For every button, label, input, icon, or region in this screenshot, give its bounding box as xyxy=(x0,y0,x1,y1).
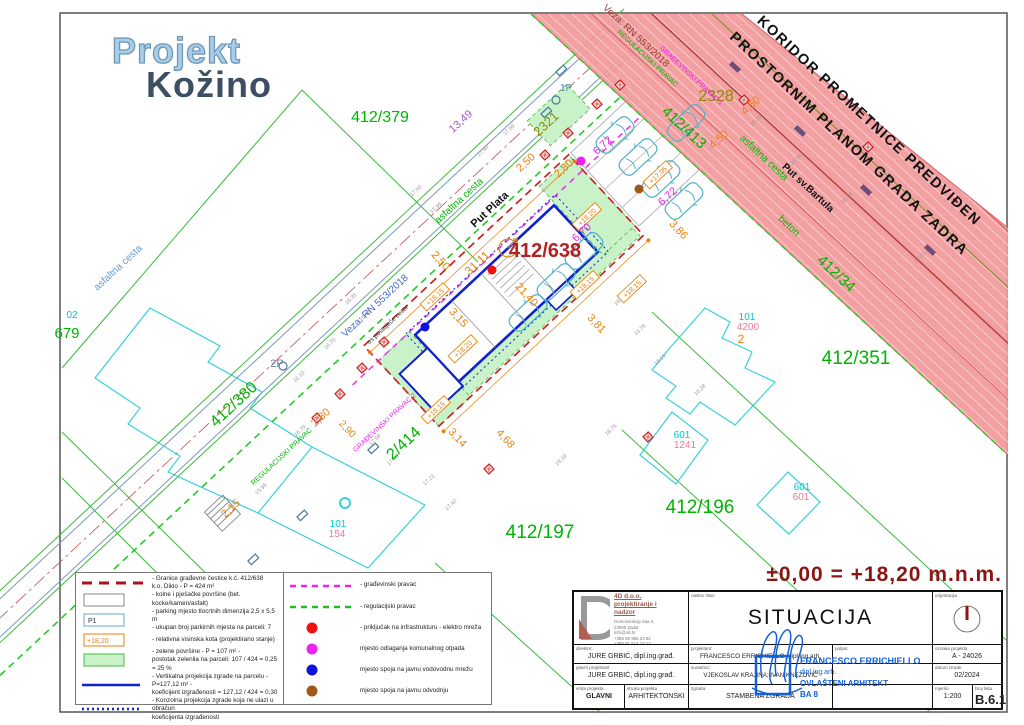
plan-label: 679 xyxy=(54,325,79,342)
legend-text: mjesto odlaganja komunalnog otpada xyxy=(360,645,465,653)
broj-lista-cell: broj lista B.6.1 xyxy=(972,684,1001,710)
vrsta-value: GLAVNI xyxy=(576,693,622,700)
legend-row: - Granice građevne čestice k.č. 412/638 … xyxy=(76,575,283,591)
boundary-marker xyxy=(592,99,602,109)
legend-symbol-dot-#1111DD xyxy=(288,662,354,678)
plan-label: 02 xyxy=(66,310,78,321)
broj-lista-value: B.6.1 xyxy=(975,692,999,707)
direktor-value: JURE GRBIĆ, dipl.ing.građ. xyxy=(576,653,686,660)
plan-label: 412/197 xyxy=(506,522,575,543)
orientation-cell: orijentacija xyxy=(932,592,1001,644)
boundary-marker xyxy=(357,363,367,373)
plan-label: 1241 xyxy=(674,440,697,451)
title-block: 4D d.o.o. projektiranje i nadzor Domovin… xyxy=(572,590,1003,710)
spot-height: 17,50 xyxy=(409,184,423,198)
plan-label: Put Plata xyxy=(469,189,512,230)
glavni-label: glavni projektant xyxy=(576,665,686,670)
direktor-label: direktor: xyxy=(576,646,686,651)
broj-lista-label: broj lista xyxy=(975,686,999,691)
plan-label: 2 xyxy=(738,332,745,346)
plan-label: 1P xyxy=(560,83,573,94)
legend-symbol-p1: P1 xyxy=(80,612,146,628)
project-logo: Projekt Kožino xyxy=(112,34,272,102)
legend-symbol-magentadash xyxy=(288,578,354,594)
elevation-box-label: +18,15 xyxy=(617,275,646,303)
glavni-value: JURE GRBIĆ, dipl.ing.građ. xyxy=(576,672,686,679)
zgrada-value: STAMBENA ZGRADA xyxy=(691,693,830,700)
legend-symbol-dot-#EE22EE xyxy=(288,641,354,657)
spot-height: 18,75 xyxy=(604,423,618,437)
legend-text: mjesto spoja na javnu vodovodnu mrežu xyxy=(360,666,473,674)
legend-right-column: - građevinski pravac- regulacijski prava… xyxy=(284,573,491,704)
spot-height: 17,59 xyxy=(502,123,516,137)
legend-text: - relativna visinska kota (projektirano … xyxy=(152,636,275,644)
drawing-sheet: 17,5017,9918,3516,4816,7016,1017,2117,40… xyxy=(0,0,1024,725)
boundary-marker xyxy=(335,389,345,399)
plan-label: 3,81 xyxy=(585,312,608,336)
legend-text: - parking mjesto tlocrtnih dimenzija 2,5… xyxy=(152,608,279,633)
oznaka-value: A - 24026 xyxy=(935,653,999,660)
legend-text: - Konzolna projekcija zgrade koja ne ula… xyxy=(152,697,279,722)
legend-left-column: - Granice građevne čestice k.č. 412/638 … xyxy=(76,573,284,704)
sheet-title-label: naslov lista: xyxy=(691,593,930,598)
plan-label: 3,86 xyxy=(667,218,690,242)
plan-label: 13,49 xyxy=(447,108,475,136)
suradnici-value: VJEKOSLAV KRAJINA; IVAN KNEZOVIĆ xyxy=(691,672,830,679)
waste-point-dot xyxy=(577,157,586,166)
direktor-cell: direktor: JURE GRBIĆ, dipl.ing.građ. xyxy=(574,644,688,663)
svg-text:+18,20: +18,20 xyxy=(87,638,109,645)
spot-height: 16,28 xyxy=(693,383,707,397)
potpis-label: potpis: xyxy=(835,646,930,651)
orientation-label: orijentacija xyxy=(935,593,999,598)
potpis-cell: potpis: xyxy=(832,644,932,663)
plan-label: 601 xyxy=(793,492,810,503)
legend-symbol-greendash xyxy=(288,599,354,615)
glavni-cell: glavni projektant JURE GRBIĆ, dipl.ing.g… xyxy=(574,663,688,684)
plan-label: 412/379 xyxy=(351,109,409,126)
legend-row: +18,20- relativna visinska kota (projekt… xyxy=(76,632,283,648)
legend-row: mjesto spoja na javnu odvodnju xyxy=(284,683,491,699)
company-logo-icon xyxy=(576,595,610,641)
projektant-value: FRANCESCO ERRICHIELLO, dipl.ing.arh. xyxy=(691,653,830,660)
projektant-cell: projektant: FRANCESCO ERRICHIELLO, dipl.… xyxy=(688,644,832,663)
spot-height: 16,78 xyxy=(633,323,647,337)
datum-label: datum izrade xyxy=(935,665,999,670)
spot-height: 17,40 xyxy=(444,498,458,512)
suradnici-cell: suradnici: VJEKOSLAV KRAJINA; IVAN KNEZO… xyxy=(688,663,832,684)
plan-label: 2/414 xyxy=(383,424,424,464)
spot-height: 18,35 xyxy=(344,292,358,306)
struka-label: struka projekta xyxy=(627,686,686,691)
plan-label: 3,14 xyxy=(446,426,469,450)
stamp-cell xyxy=(832,663,932,684)
plan-label: 2,50 xyxy=(429,249,452,273)
legend-symbol-bluedots xyxy=(80,701,146,717)
mjerilo-label: mjerilo xyxy=(935,686,970,691)
legend-row: P1- parking mjesto tlocrtnih dimenzija 2… xyxy=(76,608,283,633)
sheet-title-cell: naslov lista: SITUACIJA xyxy=(688,592,932,644)
legend-text: - zelene površine - P = 107 m² - postota… xyxy=(152,648,279,673)
plan-label: 412/196 xyxy=(666,497,735,518)
legend-symbol-dot-#EE1111 xyxy=(288,620,354,636)
spot-height: 17,90 xyxy=(476,144,490,158)
legend-symbol-green xyxy=(80,652,146,668)
vrsta-cell: vrsta projekta GLAVNI xyxy=(574,684,624,710)
plan-label: asfaltna cesta xyxy=(92,243,145,293)
legend-text: - regulacijski pravac xyxy=(360,603,416,611)
struka-value: ARHITEKTONSKI xyxy=(627,693,686,700)
plan-label: 2,80 xyxy=(309,406,333,429)
svg-text:P1: P1 xyxy=(88,618,97,625)
legend-row: - Vertikalna projekcija zgrade na parcel… xyxy=(76,673,283,698)
legend-row: - građevinski pravac xyxy=(284,578,491,594)
mjerilo-cell: mjerilo 1:200 xyxy=(932,684,972,710)
spot-height: 17,21 xyxy=(422,473,436,487)
legend-symbol-surface xyxy=(80,592,146,608)
company-address: Domovinskog rata 3, 23000 Zadar info@4d.… xyxy=(614,619,686,647)
company-name: 4D d.o.o. projektiranje i nadzor xyxy=(614,593,686,617)
plan-label: 4,68 xyxy=(494,427,517,451)
legend-row: - kolne i pješačke površine (bet. kocke/… xyxy=(76,591,283,607)
spot-height: 16,10 xyxy=(292,370,306,384)
legend-text: mjesto spoja na javnu odvodnju xyxy=(360,687,448,695)
legend-row: - priključak na infrastrukturu - elektro… xyxy=(284,620,491,636)
legend-row: mjesto odlaganja komunalnog otpada xyxy=(284,641,491,657)
legend-row: - regulacijski pravac xyxy=(284,599,491,615)
struka-cell: struka projekta ARHITEKTONSKI xyxy=(624,684,688,710)
legend-row: mjesto spoja na javnu vodovodnu mrežu xyxy=(284,662,491,678)
vrsta-label: vrsta projekta xyxy=(576,686,622,691)
boundary-marker xyxy=(484,464,494,474)
suradnici-label: suradnici: xyxy=(691,665,830,670)
legend-text: - kolne i pješačke površine (bet. kocke/… xyxy=(152,591,279,607)
stamp-cell2 xyxy=(832,684,932,710)
spot-height: 18,19 xyxy=(653,353,667,367)
boundary-marker xyxy=(379,337,389,347)
legend-symbol-dot-#A05818 xyxy=(288,683,354,699)
plan-label: 154 xyxy=(329,529,346,540)
datum-cell: datum izrade 02/2024 xyxy=(932,663,1001,684)
logo-line1: Projekt xyxy=(112,34,272,68)
plan-label: Veza: RN 553/2018 xyxy=(340,272,411,339)
elektro-connection-dot xyxy=(488,266,497,275)
north-compass-icon xyxy=(950,600,984,634)
legend-row: - zelene površine - P = 107 m² - postota… xyxy=(76,648,283,673)
plan-label: 412/351 xyxy=(822,348,891,369)
zgrada-label: zgrada: xyxy=(691,686,830,691)
legend-symbol-bluesolid xyxy=(80,677,146,693)
projektant-label: projektant: xyxy=(691,646,830,651)
legend-text: - Granice građevne čestice k.č. 412/638 … xyxy=(152,575,263,591)
legend-symbol-kota: +18,20 xyxy=(80,632,146,648)
company-cell: 4D d.o.o. projektiranje i nadzor Domovin… xyxy=(574,592,688,644)
zgrada-cell: zgrada: STAMBENA ZGRADA xyxy=(688,684,832,710)
logo-line2: Kožino xyxy=(146,68,272,102)
legend-symbol-boundary xyxy=(80,575,146,591)
spot-height: 18,19 xyxy=(554,453,568,467)
plan-label: 2,90 xyxy=(336,418,358,440)
legend: - Granice građevne čestice k.č. 412/638 … xyxy=(75,572,492,705)
mjerilo-value: 1:200 xyxy=(935,693,970,700)
oznaka-label: oznaka projekta xyxy=(935,646,999,651)
elevation-note: ±0,00 = +18,20 m.n.m. xyxy=(600,563,1002,587)
oznaka-cell: oznaka projekta A - 24026 xyxy=(932,644,1001,663)
water-connection-dot xyxy=(421,323,430,332)
sheet-title: SITUACIJA xyxy=(691,606,930,630)
boundary-marker xyxy=(540,150,550,160)
legend-row: - Konzolna projekcija zgrade koja ne ula… xyxy=(76,697,283,722)
legend-text: - građevinski pravac xyxy=(360,581,416,589)
legend-text: - Vertikalna projekcija zgrade na parcel… xyxy=(152,673,279,698)
legend-text: - priključak na infrastrukturu - elektro… xyxy=(360,624,481,632)
datum-value: 02/2024 xyxy=(935,672,999,679)
plan-label: 2P xyxy=(270,358,283,370)
plan-label: 412/638 xyxy=(509,240,581,262)
sewer-connection-dot xyxy=(635,185,644,194)
